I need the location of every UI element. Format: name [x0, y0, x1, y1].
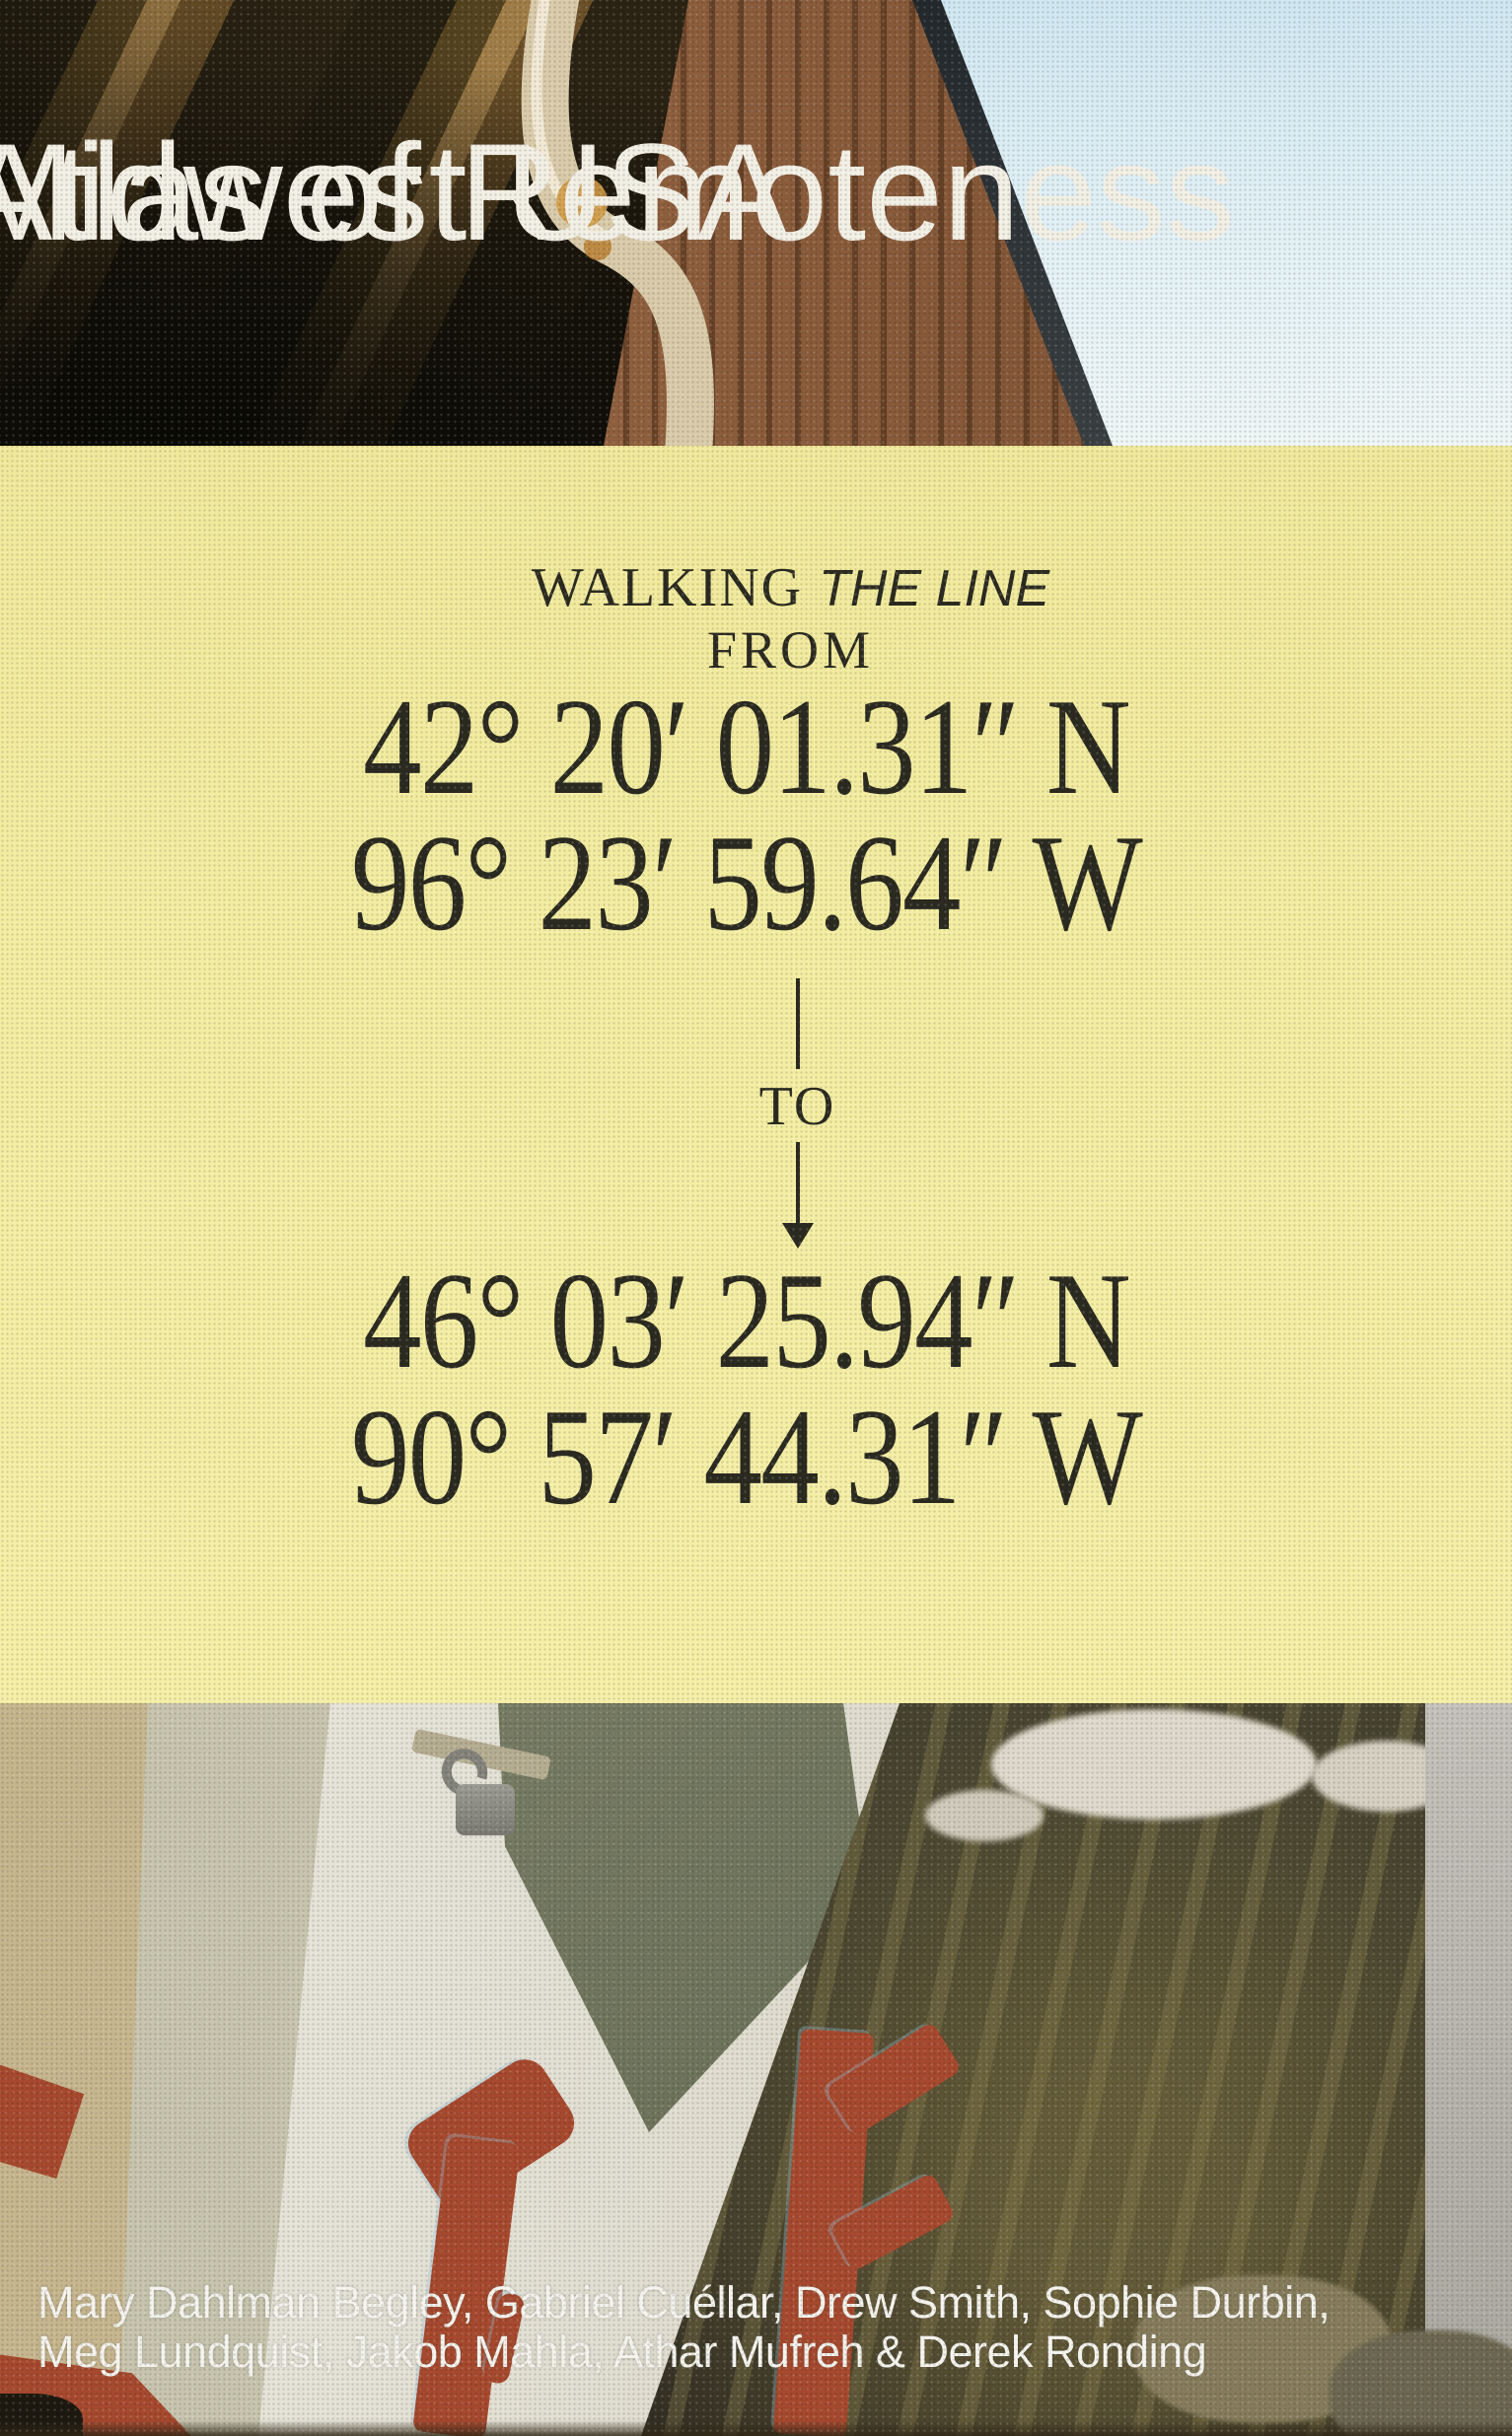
origin-latitude: 42° 20′ 01.31″ N [95, 679, 1397, 817]
authors-line-2: Meg Lundquist, Jakob Mahla, Athar Mufreh… [37, 2328, 1497, 2377]
authors-line-1: Mary Dahlman Begley, Gabriel Cuéllar, Dr… [37, 2278, 1497, 2328]
to-label: TO [83, 1075, 1512, 1138]
scan-edge [0, 2420, 1512, 2436]
authors-list: Mary Dahlman Begley, Gabriel Cuéllar, Dr… [37, 2278, 1497, 2377]
destination-longitude: 90° 57′ 44.31″ W [95, 1389, 1397, 1527]
origin-longitude: 96° 23′ 59.64″ W [95, 815, 1397, 953]
vertical-rule [796, 978, 800, 1069]
snow-patch [991, 1709, 1317, 1820]
arrow-down-icon [796, 1142, 800, 1223]
top-photo: Atlas of Remoteness Midwest USA [0, 0, 1512, 446]
walking-label: WALKING [532, 557, 803, 618]
snow-patch [925, 1790, 1044, 1841]
destination-latitude: 46° 03′ 25.94″ N [95, 1253, 1397, 1391]
journey-marker: TO [83, 978, 1512, 1254]
walking-the-line-heading: WALKING THE LINE [69, 556, 1512, 619]
title-line-2: Midwest USA [0, 120, 789, 264]
book-cover: Atlas of Remoteness Midwest USA WALKING … [0, 0, 1512, 2436]
center-panel: WALKING THE LINE FROM 42° 20′ 01.31″ N 9… [0, 446, 1512, 1703]
bottom-photo: Mary Dahlman Begley, Gabriel Cuéllar, Dr… [0, 1703, 1512, 2436]
padlock-icon [456, 1784, 515, 1835]
the-line-label: THE LINE [819, 560, 1049, 617]
